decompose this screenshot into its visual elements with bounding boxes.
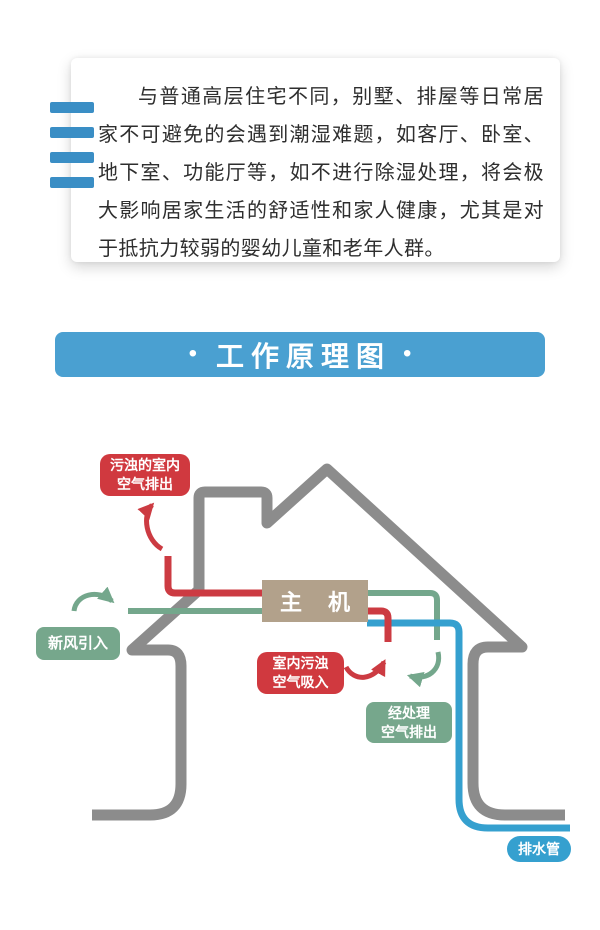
intro-paragraph: 与普通高层住宅不同，别墅、排屋等日常居家不可避免的会遇到潮湿难题，如客厅、卧室、… bbox=[71, 58, 560, 268]
banner-bullet-left-icon: • bbox=[189, 342, 197, 366]
label-line: 新风引入 bbox=[48, 634, 108, 653]
label-line: 空气排出 bbox=[381, 723, 437, 742]
label-fresh-air-in: 新风引入 bbox=[36, 627, 120, 660]
intake-up-arrow-icon bbox=[346, 662, 384, 677]
label-line: 空气吸入 bbox=[273, 673, 329, 692]
label-line: 污浊的室内 bbox=[110, 456, 180, 475]
main-unit-box: 主 机 bbox=[262, 580, 368, 622]
banner-bullet-right-icon: • bbox=[403, 342, 411, 366]
accent-bar bbox=[50, 152, 94, 163]
fresh-in-arrow-icon bbox=[74, 594, 112, 611]
page: { "intro_card": { "text": "与普通高层住宅不同，别墅、… bbox=[0, 0, 600, 930]
label-line: 经处理 bbox=[388, 704, 430, 723]
label-line: 室内污浊 bbox=[273, 654, 329, 673]
label-line: 排水管 bbox=[518, 840, 560, 859]
label-treated-air-out: 经处理 空气排出 bbox=[366, 702, 452, 743]
house-outline bbox=[92, 469, 565, 815]
intro-card: 与普通高层住宅不同，别墅、排屋等日常居家不可避免的会遇到潮湿难题，如客厅、卧室、… bbox=[71, 58, 560, 262]
accent-bar bbox=[50, 102, 94, 113]
exhaust-pipe-chimney bbox=[168, 556, 263, 593]
label-indoor-dirty-in: 室内污浊 空气吸入 bbox=[257, 652, 344, 694]
label-dirty-air-out: 污浊的室内 空气排出 bbox=[100, 454, 190, 496]
exhaust-up-arrow-icon bbox=[147, 505, 162, 549]
accent-bar bbox=[50, 177, 94, 188]
fresh-air-pipe-right bbox=[367, 593, 437, 640]
label-line: 空气排出 bbox=[117, 475, 173, 494]
section-banner: • 工作原理图 • bbox=[55, 332, 545, 377]
treated-out-arrow-icon bbox=[410, 652, 439, 677]
label-drain-pipe: 排水管 bbox=[507, 836, 571, 862]
accent-bar bbox=[50, 127, 94, 138]
banner-title: 工作原理图 bbox=[209, 335, 391, 375]
